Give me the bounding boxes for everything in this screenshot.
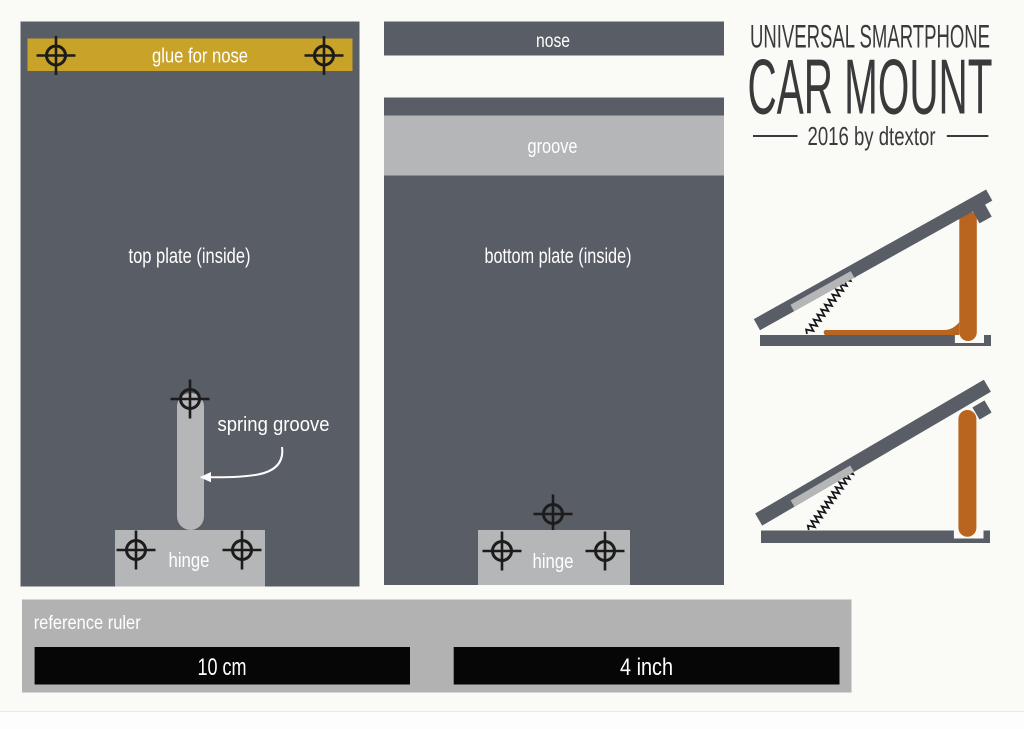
svg-text:hinge: hinge bbox=[169, 550, 210, 572]
svg-text:bottom plate (inside): bottom plate (inside) bbox=[485, 245, 632, 268]
svg-text:groove: groove bbox=[528, 136, 578, 158]
svg-text:spring groove: spring groove bbox=[218, 414, 330, 436]
svg-text:reference ruler: reference ruler bbox=[34, 613, 142, 634]
svg-text:hinge: hinge bbox=[533, 551, 574, 573]
svg-text:CAR MOUNT: CAR MOUNT bbox=[748, 43, 993, 131]
svg-text:nose: nose bbox=[536, 31, 570, 52]
svg-text:top plate (inside): top plate (inside) bbox=[129, 245, 251, 268]
svg-text:10 cm: 10 cm bbox=[198, 654, 247, 681]
svg-text:2016 by dtextor: 2016 by dtextor bbox=[808, 121, 936, 151]
svg-text:glue for nose: glue for nose bbox=[152, 46, 248, 68]
svg-text:4 inch: 4 inch bbox=[620, 654, 673, 681]
